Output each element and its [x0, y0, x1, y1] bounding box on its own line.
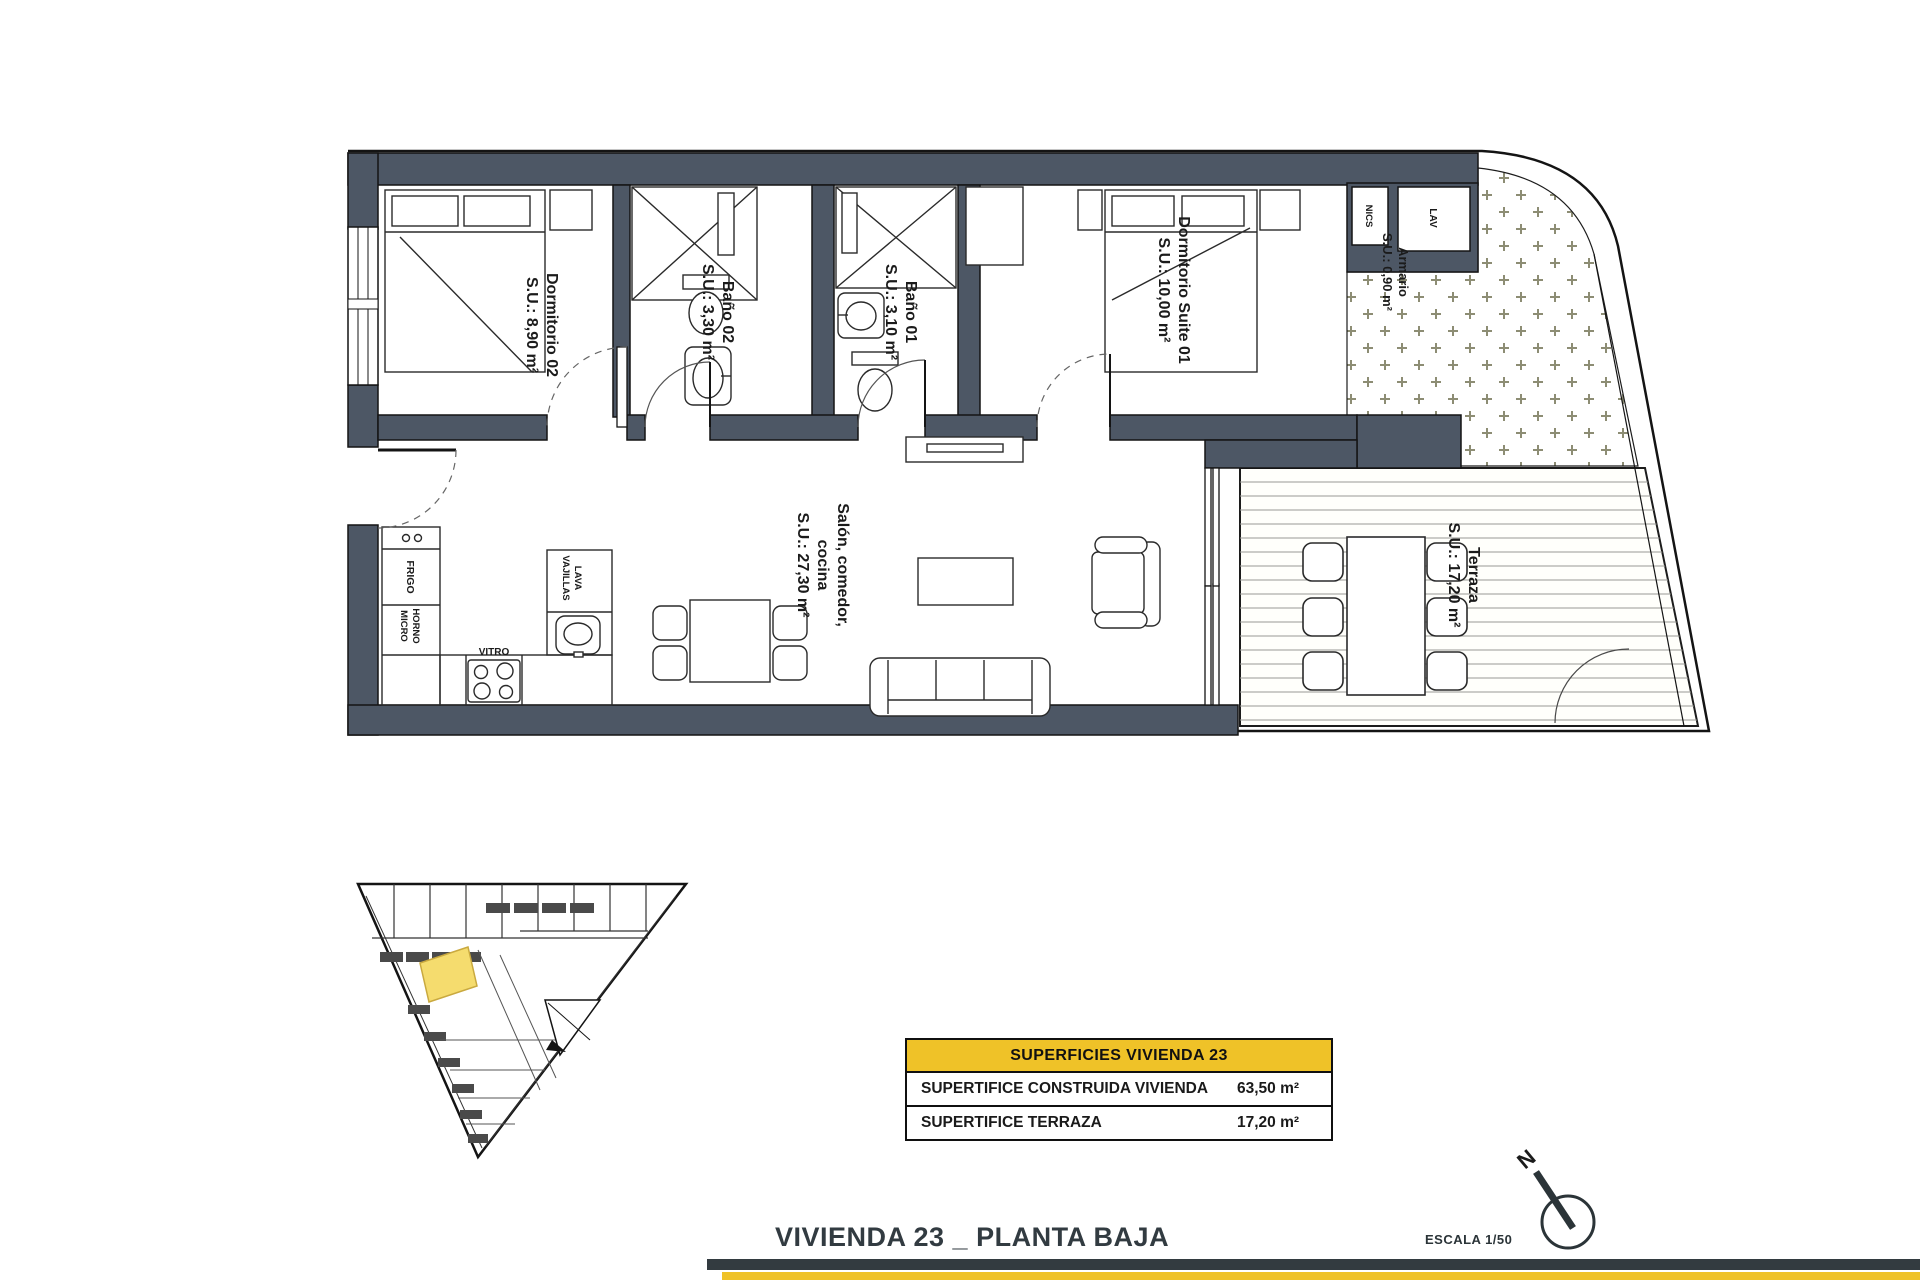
sofa [870, 658, 1050, 716]
armchair [1092, 537, 1160, 628]
label-micro: MICRO [398, 610, 409, 642]
room-area: S.U.: 10,00 m² [1155, 238, 1172, 343]
wardrobe-suite-01 [966, 187, 1023, 265]
room-name-line2: cocina [814, 540, 831, 591]
north-letter: N [1512, 1144, 1540, 1173]
terrace-sliding-door [1205, 468, 1219, 705]
label-horno: HORNO [410, 608, 421, 643]
room-name: Baño 02 [719, 281, 736, 343]
window-dormitorio-02 [348, 227, 378, 385]
label-nics: NICS [1363, 205, 1374, 228]
page-title: VIVIENDA 23 _ PLANTA BAJA [775, 1222, 1169, 1253]
footer-yellow-bar [722, 1272, 1920, 1280]
room-name: Armario [1396, 247, 1411, 297]
site-plaza [545, 1000, 600, 1055]
label-lava: LAVA [572, 566, 583, 591]
coffee-table [918, 558, 1013, 605]
label-vitro: VITRO [479, 647, 510, 658]
tv-console [906, 437, 1023, 462]
site-plan [358, 884, 686, 1157]
row-label: SUPERTIFICE TERRAZA [907, 1114, 1102, 1132]
label-lav: LAV [1427, 208, 1438, 228]
footer-dark-bar [707, 1259, 1920, 1270]
dining-table [653, 600, 807, 682]
scale-label: ESCALA 1/50 [1425, 1232, 1512, 1247]
row-value: 17,20 m² [1237, 1114, 1299, 1132]
table-row: SUPERTIFICE TERRAZA 17,20 m² [907, 1107, 1331, 1139]
door-suite-01 [1037, 354, 1110, 427]
room-name: Baño 01 [902, 281, 919, 343]
kitchen-sink [556, 616, 600, 657]
room-name: Dormitorio 02 [543, 273, 560, 377]
room-label-bano-01: Baño 01 S.U.: 3,10 m² [882, 264, 919, 360]
table-row: SUPERTIFICE CONSTRUIDA VIVIENDA 63,50 m² [907, 1073, 1331, 1107]
row-label: SUPERTIFICE CONSTRUIDA VIVIENDA [907, 1080, 1208, 1098]
room-area: S.U.: 27,30 m² [794, 513, 811, 618]
north-arrow: N [1505, 1140, 1625, 1258]
room-label-suite-01: Dormitorio Suite 01 S.U.: 10,00 m² [1155, 216, 1192, 364]
room-area: S.U.: 3,10 m² [882, 264, 899, 360]
sink-bano-01 [838, 293, 884, 338]
room-label-salon: Salón, comedor, cocina S.U.: 27,30 m² [794, 503, 851, 627]
surface-summary-table: SUPERFICIES VIVIENDA 23 SUPERTIFICE CONS… [905, 1038, 1333, 1141]
room-area: S.U.: 0,90 m² [1380, 233, 1395, 312]
room-name: Terraza [1465, 547, 1482, 603]
label-frigo: FRIGO [404, 560, 416, 593]
room-area: S.U.: 17,20 m² [1445, 523, 1462, 628]
room-name-line1: Salón, comedor, [834, 503, 851, 627]
summary-table-header: SUPERFICIES VIVIENDA 23 [907, 1040, 1331, 1073]
floor-plan-sheet: Dormitorio 02 S.U.: 8,90 m² Baño 02 S.U.… [0, 0, 1920, 1280]
row-value: 63,50 m² [1237, 1080, 1299, 1098]
room-name: Dormitorio Suite 01 [1175, 216, 1192, 364]
cooktop-vitro [468, 660, 520, 702]
outdoor-table [1303, 537, 1467, 695]
label-vajillas: VAJILLAS [560, 555, 571, 600]
room-label-dormitorio-02: Dormitorio 02 S.U.: 8,90 m² [523, 273, 560, 377]
room-area: S.U.: 8,90 m² [523, 277, 540, 373]
entrance-door [378, 450, 456, 528]
room-area: S.U.: 3,30 m² [699, 264, 716, 360]
